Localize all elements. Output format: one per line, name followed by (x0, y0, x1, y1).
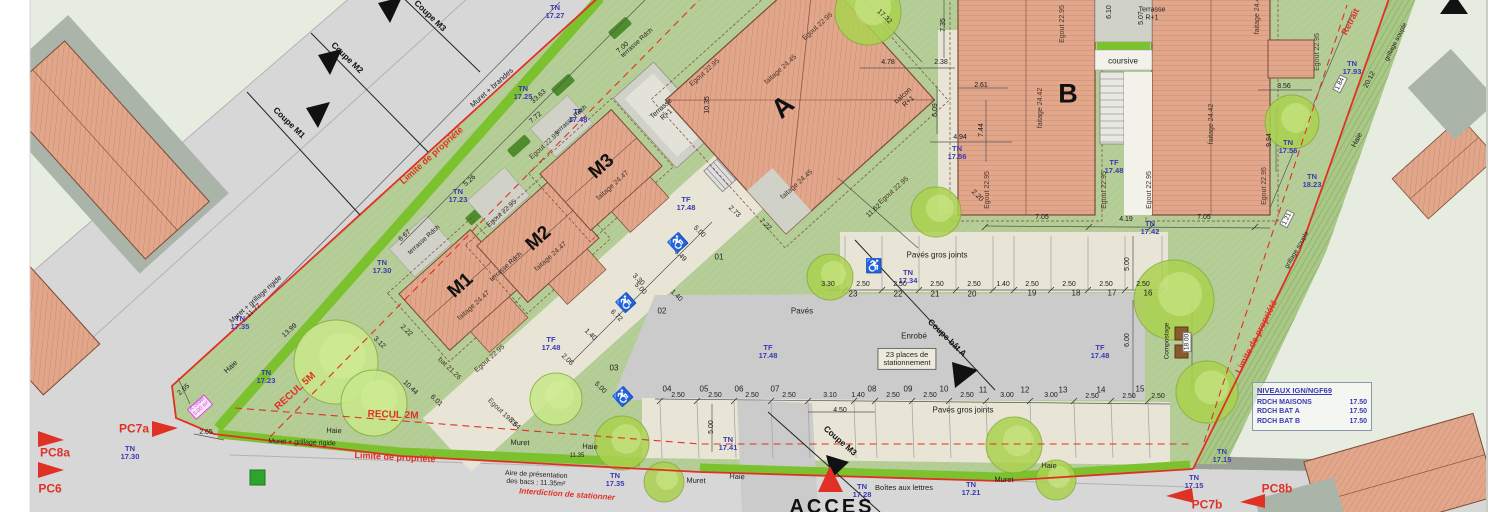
level-row: RDCH BAT A17.50 (1257, 407, 1367, 416)
tree (595, 416, 649, 470)
green-square-marker (250, 470, 265, 485)
site-plan-drawing (0, 0, 1504, 512)
tree (1134, 260, 1214, 340)
tree (986, 417, 1042, 473)
compost-bin (1175, 327, 1188, 340)
levels-rows: RDCH MAISONS17.50RDCH BAT A17.50RDCH BAT… (1257, 398, 1367, 426)
tree (341, 370, 407, 436)
levels-legend-box: NIVEAUX IGN/NGF69 RDCH MAISONS17.50RDCH … (1252, 382, 1372, 431)
stairs-b (1100, 72, 1124, 144)
entrance-drive (737, 400, 818, 512)
levels-legend-title: NIVEAUX IGN/NGF69 (1257, 386, 1367, 395)
coursive (1095, 50, 1152, 70)
tree (911, 187, 961, 237)
level-row: RDCH BAT B17.50 (1257, 417, 1367, 426)
tree (530, 373, 582, 425)
site-plan: Limite de propriétéLimite de propriétéLi… (0, 0, 1504, 512)
tree (1036, 460, 1076, 500)
tree (644, 462, 684, 502)
compost-bin (1175, 345, 1188, 358)
level-row: RDCH MAISONS17.50 (1257, 398, 1367, 407)
building-b (950, 0, 1314, 221)
terrace-r1-b (1095, 0, 1152, 42)
tree (807, 254, 853, 300)
tree (1265, 95, 1319, 149)
tree (1176, 361, 1238, 423)
